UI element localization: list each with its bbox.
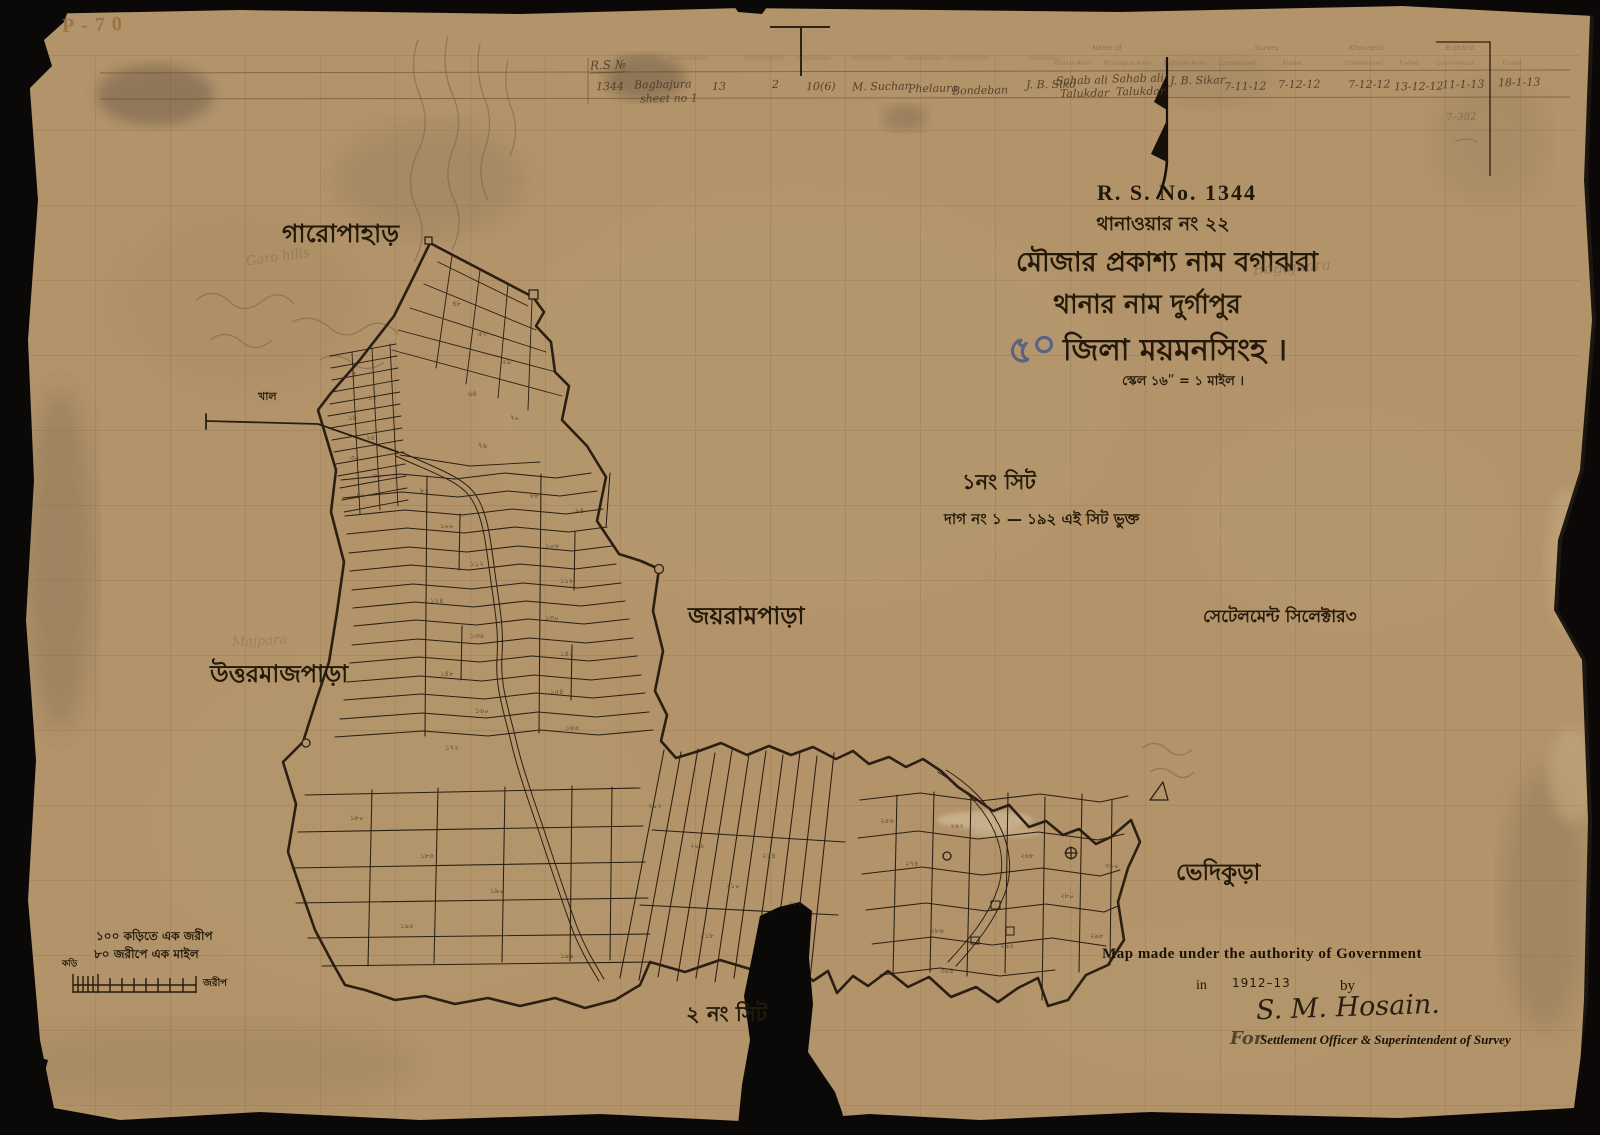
place-uttarmajpara: উত্তরমাজপাড়া: [210, 656, 348, 696]
attribution-line2: Settlement Officer & Superintendent of S…: [1260, 1032, 1511, 1048]
table-group-header: Khanapuri: [1349, 44, 1385, 52]
plot-number: ১৯০: [490, 885, 504, 897]
table-group-header: Name of: [1092, 44, 1122, 52]
plot-number: ২২২: [788, 898, 802, 910]
plot-number: ২৫৬: [880, 815, 894, 827]
plot-number: ৯৪: [575, 505, 584, 517]
rs-number: R. S. No. 1344: [1097, 180, 1257, 206]
plot-number: ২৭৪: [905, 858, 919, 870]
plot-number: ৩৬: [372, 470, 381, 482]
table-cell: sheet no 1: [640, 91, 698, 105]
attribution-for: For: [1230, 1028, 1263, 1049]
plot-number: ২৯৮: [1090, 930, 1104, 942]
table-cell: 10(6): [806, 80, 836, 94]
scale-note-line2: ৮০ জরীপে এক মাইল: [94, 946, 199, 966]
plot-number: ২১৮: [700, 930, 714, 942]
plot-number: ২১৪: [762, 850, 776, 862]
attribution-years: 1912–13: [1232, 976, 1291, 990]
plot-number: ২৪: [366, 432, 375, 444]
plot-number: ১১৮: [560, 575, 574, 587]
sheet2-label: ২ নং সিট: [686, 998, 767, 1033]
sheet1-label: ১নং সিট: [962, 466, 1036, 501]
khal-label: খাল: [258, 388, 277, 407]
plot-number: ১৫৪: [550, 686, 564, 698]
plot-number: ৩১০: [1105, 860, 1119, 872]
plot-number: ৫৩: [478, 328, 487, 340]
table-sub-header: Commenced: [1436, 60, 1474, 67]
plot-number: ১৯৯: [560, 950, 574, 962]
table-cell: Sahab ali: [1056, 74, 1108, 88]
table-group-header: Survey: [1255, 44, 1279, 52]
plot-number: ৮৮: [530, 490, 539, 502]
plot-number: ৩০: [350, 452, 359, 464]
table-cell: 11-1-13: [1442, 78, 1485, 92]
table-sub-header: Khasra Amin: [1054, 60, 1092, 67]
table-cell: 18-1-13: [1498, 76, 1541, 90]
title-thana-no: থানাওয়ার নং ২২: [1096, 210, 1229, 242]
table-sub-header: Ended: [1503, 60, 1522, 67]
plot-number: ৫: [352, 368, 357, 380]
table-cell: Talukdar: [1060, 87, 1109, 101]
plot-number: ১৮৬: [420, 850, 434, 862]
plot-number: ৩০৪: [940, 965, 954, 977]
table-sub-header: Ended: [1283, 60, 1302, 67]
table-cell: 7-12-12: [1348, 78, 1391, 92]
place-bhedikura: ভেদিকুড়া: [1176, 854, 1260, 893]
table-cell: 13-12-12: [1394, 80, 1444, 94]
table-cell: 13: [712, 80, 726, 93]
table-group-header: Bujharat: [1445, 44, 1475, 52]
plot-number: ১৬০: [475, 705, 489, 717]
plot-number: ১২৪: [430, 595, 444, 607]
place-majpara-pencil: Majpara: [232, 633, 288, 651]
title-thana-name: থানার নাম দুর্গাপুর: [1053, 284, 1241, 328]
table-cell: Talukdar: [1116, 85, 1165, 99]
table-cell: Bagbajura: [634, 77, 692, 91]
plot-number: ১৮০: [350, 812, 364, 824]
table-cell: 1344: [596, 80, 624, 93]
plot-number: ২০৬: [690, 840, 704, 852]
table-cell: Bondeban: [952, 84, 1008, 98]
plot-number: ১৯৫: [400, 920, 414, 932]
plot-number: ২৮০: [1060, 890, 1074, 902]
place-jayrampara: জয়রামপাড়া: [688, 598, 804, 638]
table-sub-header: Ended: [1400, 60, 1419, 67]
table-cell: Phelaura: [908, 82, 958, 96]
table-cell: M. Suchar: [852, 79, 910, 93]
settlement-mark-label: সেটেলমেন্ট সিলেক্টার৩: [1203, 604, 1357, 632]
table-sub-header: Commenced: [1345, 60, 1383, 67]
map-drawing: [0, 0, 1600, 1135]
table-cell: Sahab ali: [1112, 72, 1164, 86]
table-cell: 7-11-12: [1224, 80, 1267, 94]
officer-signature: S. M. Hosain.: [1256, 989, 1441, 1026]
plot-number: ৬৪: [468, 388, 477, 400]
title-district: জিলা ময়মনসিংহ ।: [1063, 326, 1287, 377]
title-scale: স্কেল ১৬ʺ = ১ মাইল ।: [1122, 372, 1244, 393]
table-sub-header: Bujharat Amin: [1164, 60, 1207, 67]
plot-number: ২৮৬: [930, 925, 944, 937]
plot-number: ২০২: [648, 800, 662, 812]
plot-number: ২৯২: [1000, 940, 1014, 952]
plot-number: ৮২: [420, 485, 429, 497]
plot-number: ১৪২: [560, 648, 574, 660]
map-sheet: P-70 R. S. No. 1344 থানাওয়ার নং ২২ মৌজা…: [0, 0, 1600, 1135]
scale-unit-left: কড়ি: [62, 956, 77, 971]
plot-number: ২১০: [726, 880, 740, 892]
sheet1-plot-range: দাগ নং ১ — ১৯২ এই সিট ভুক্ত: [944, 508, 1139, 533]
table-cell: J. B. Sikar: [1170, 74, 1225, 88]
attribution-in: in: [1196, 978, 1207, 994]
plot-number: ১৭২: [445, 742, 459, 754]
plot-number: ৪৮: [452, 298, 461, 310]
plot-number: ২৬২: [950, 820, 964, 832]
plot-number: ৫৯: [502, 356, 511, 368]
plot-number: ১০০: [440, 520, 454, 532]
table-cell: 7-12-12: [1278, 78, 1321, 92]
plot-number: ১৪৮: [440, 668, 454, 680]
archive-stamp: P-70: [62, 13, 130, 38]
plot-number: ৭০: [510, 412, 519, 424]
table-rs-label: R.S №: [590, 57, 627, 73]
plot-number: ৭৬: [478, 440, 487, 452]
plot-number: ১০৬: [545, 540, 559, 552]
scale-note-line1: ১০০ কড়িতে এক জরীপ: [96, 928, 213, 948]
plot-number: ২৬৮: [1020, 850, 1034, 862]
table-sub-header: Khanapuri Amin: [1104, 60, 1152, 67]
plot-number: ১৬৬: [565, 722, 579, 734]
plot-number: ১৮: [348, 412, 357, 424]
scale-unit-right: জরীপ: [203, 976, 227, 993]
table-cell: 2: [772, 78, 779, 91]
plot-number: ১১২: [470, 558, 484, 570]
plot-number: ১২: [368, 392, 377, 404]
table-sub-header: Commenced: [1218, 60, 1256, 67]
pencil-note: 7–382: [1446, 111, 1477, 123]
plot-number: ১৩০: [545, 612, 559, 624]
plot-number: ১৩৬: [470, 630, 484, 642]
attribution-line1: Map made under the authority of Governme…: [1102, 946, 1422, 963]
plot-number: ৪২: [356, 490, 365, 502]
